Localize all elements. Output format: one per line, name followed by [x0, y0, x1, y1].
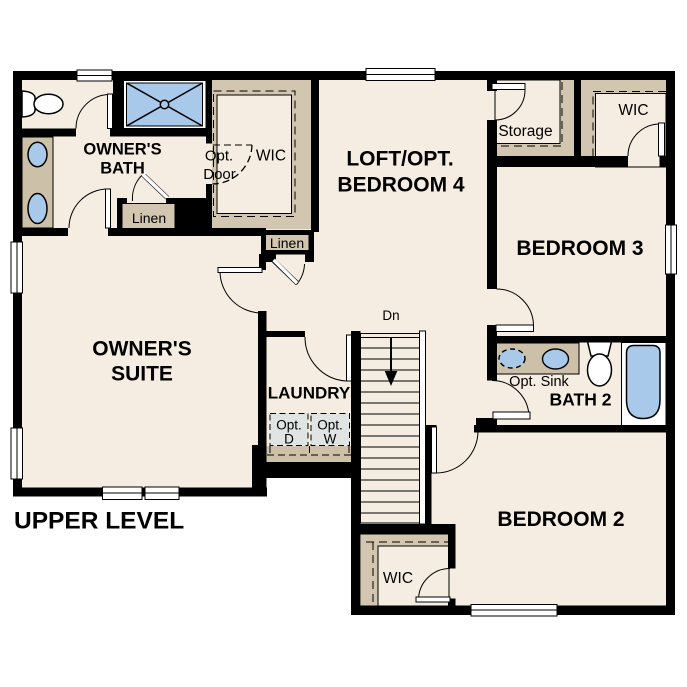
svg-text:BATH 2: BATH 2	[550, 390, 612, 410]
svg-text:WIC: WIC	[256, 148, 286, 165]
svg-text:W: W	[324, 432, 337, 447]
svg-text:BEDROOM 4: BEDROOM 4	[337, 174, 465, 197]
svg-text:OWNER'S: OWNER'S	[83, 141, 161, 159]
svg-text:BEDROOM 2: BEDROOM 2	[497, 508, 624, 531]
svg-text:OWNER'S: OWNER'S	[92, 338, 192, 361]
svg-text:SUITE: SUITE	[111, 363, 173, 386]
svg-text:Dn: Dn	[382, 308, 399, 323]
svg-text:Opt. Sink: Opt. Sink	[509, 374, 569, 390]
svg-text:Door: Door	[203, 166, 236, 183]
svg-text:Storage: Storage	[498, 123, 552, 140]
svg-text:BATH: BATH	[100, 160, 145, 178]
svg-text:WIC: WIC	[618, 102, 648, 119]
svg-text:Opt.: Opt.	[276, 418, 302, 433]
svg-text:LOFT/OPT.: LOFT/OPT.	[346, 148, 453, 171]
svg-text:WIC: WIC	[383, 570, 413, 587]
svg-text:BEDROOM 3: BEDROOM 3	[516, 237, 643, 260]
svg-text:UPPER LEVEL: UPPER LEVEL	[14, 508, 184, 535]
svg-text:Linen: Linen	[270, 235, 304, 251]
svg-text:D: D	[284, 432, 294, 447]
svg-text:Linen: Linen	[132, 210, 166, 226]
svg-text:Opt.: Opt.	[317, 418, 343, 433]
svg-text:Opt.: Opt.	[205, 148, 233, 165]
svg-text:LAUNDRY: LAUNDRY	[268, 384, 351, 403]
